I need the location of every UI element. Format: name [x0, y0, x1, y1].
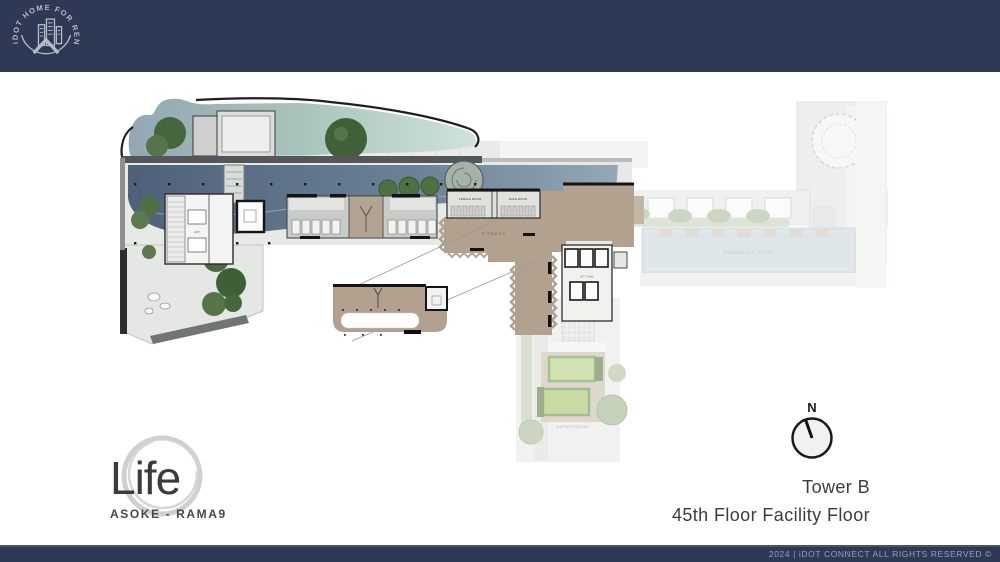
adjacent-amenity-right: SWIMMING POOL — [612, 102, 888, 288]
compass-n-label: N — [807, 400, 816, 415]
tower-name: Tower B — [610, 477, 870, 498]
life-subtitle: ASOKE - RAMA9 — [110, 507, 227, 521]
floor-name: 45th Floor Facility Floor — [610, 505, 870, 526]
lawn-terrace — [543, 389, 589, 415]
tree — [146, 135, 168, 157]
lift-label: LIFT — [194, 230, 200, 234]
page: iDOT HOME FOR RENT — [0, 0, 1000, 562]
fire-lift-room — [237, 201, 264, 232]
amphitheater-label: AMPHITHEATER — [557, 425, 589, 429]
life-logo: Life ASOKE - RAMA9 — [94, 428, 234, 540]
life-wordmark: Life — [110, 452, 180, 504]
lawn-terrace — [549, 357, 595, 381]
service-lift — [614, 252, 627, 268]
plan-info: N Tower B 45th Floor Facility Floor — [610, 398, 870, 526]
lift-hall-label: LIFT HALL — [580, 275, 595, 279]
fitness-label: FITNESS — [482, 231, 506, 236]
tree — [325, 118, 367, 160]
games-table — [341, 313, 419, 328]
copyright-text: 2024 | iDOT CONNECT ALL RIGHTS RESERVED … — [769, 549, 992, 559]
swimming-pool-label: SWIMMING POOL — [724, 250, 775, 255]
male-room-label: MALE ROOM — [509, 197, 528, 201]
bottom-banner: 2024 | iDOT CONNECT ALL RIGHTS RESERVED … — [0, 545, 1000, 562]
female-room-label: FEMALE ROOM — [459, 197, 482, 201]
north-compass-icon: N — [784, 398, 840, 464]
